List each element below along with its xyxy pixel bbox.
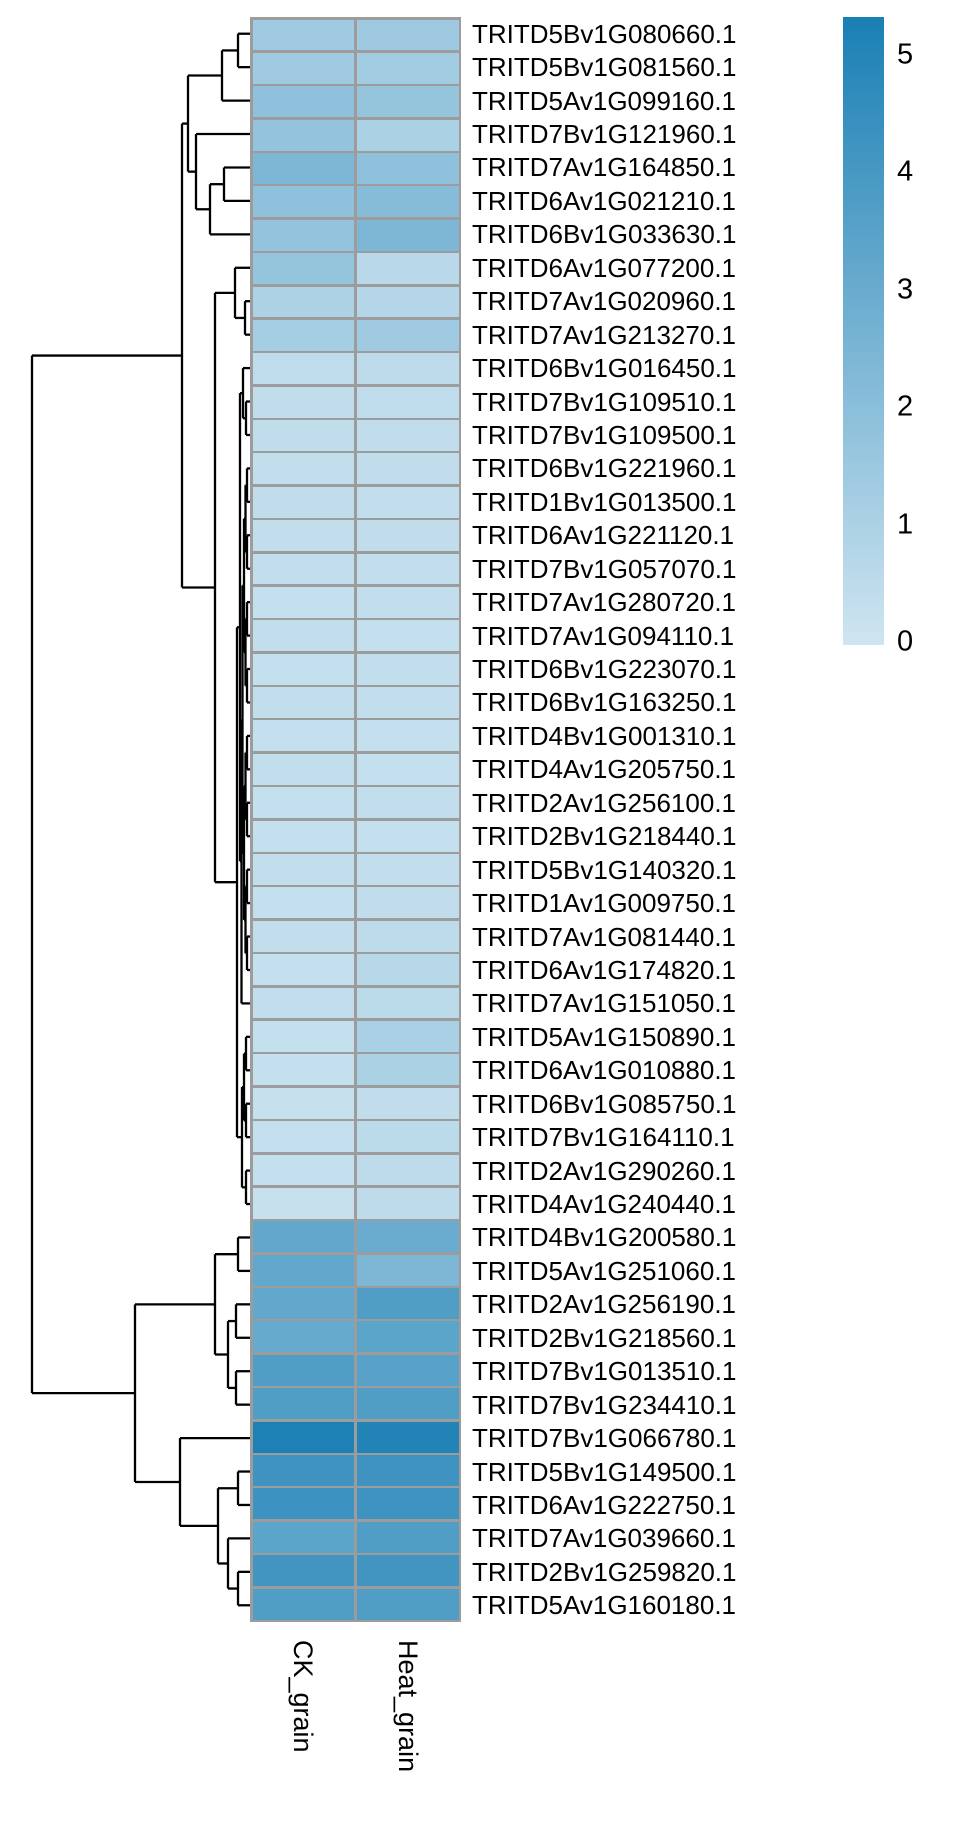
row-label: TRITD6Bv1G033630.1 (472, 221, 736, 247)
heatmap-cell (253, 1422, 355, 1453)
heatmap-cell (357, 620, 459, 651)
heatmap-cell (253, 287, 355, 318)
heatmap-cell (253, 1188, 355, 1219)
heatmap-cell (357, 1488, 459, 1519)
heatmap-cell (253, 1488, 355, 1519)
heatmap-cell (253, 1388, 355, 1419)
heatmap-cell (357, 1288, 459, 1319)
heatmap-cell (357, 487, 459, 518)
heatmap-cell (253, 821, 355, 852)
heatmap-cell (253, 720, 355, 751)
row-label: TRITD6Bv1G016450.1 (472, 355, 736, 381)
clustered-heatmap-figure: TRITD5Bv1G080660.1TRITD5Bv1G081560.1TRIT… (0, 0, 961, 1825)
row-label: TRITD5Bv1G140320.1 (472, 857, 736, 883)
row-label: TRITD6Av1G174820.1 (472, 957, 736, 983)
row-label: TRITD6Bv1G223070.1 (472, 656, 736, 682)
row-label: TRITD7Av1G151050.1 (472, 990, 736, 1016)
row-label: TRITD7Bv1G164110.1 (472, 1124, 735, 1150)
heatmap-cell (357, 687, 459, 718)
heatmap-cell (253, 1455, 355, 1486)
heatmap-cell (357, 387, 459, 418)
row-label: TRITD7Av1G213270.1 (472, 322, 736, 348)
row-label: TRITD4Av1G240440.1 (472, 1191, 736, 1217)
heatmap-cell (357, 1054, 459, 1085)
heatmap-cell (253, 1321, 355, 1352)
heatmap-cell (253, 754, 355, 785)
row-label: TRITD5Av1G150890.1 (472, 1024, 736, 1050)
row-label: TRITD7Av1G020960.1 (472, 288, 736, 314)
heatmap-cell (357, 554, 459, 585)
row-label: TRITD5Bv1G080660.1 (472, 21, 736, 47)
heatmap-cell (253, 320, 355, 351)
heatmap-cell (357, 587, 459, 618)
heatmap-cell (357, 253, 459, 284)
heatmap-cell (357, 20, 459, 51)
heatmap-cell (253, 520, 355, 551)
heatmap-cell (253, 921, 355, 952)
heatmap-cell (253, 687, 355, 718)
heatmap-cell (357, 1121, 459, 1152)
heatmap-cell (253, 86, 355, 117)
heatmap-cell (253, 1288, 355, 1319)
row-label: TRITD6Av1G221120.1 (472, 522, 734, 548)
heatmap-cell (357, 287, 459, 318)
heatmap-cell (253, 1589, 355, 1620)
heatmap-cell (253, 420, 355, 451)
row-label: TRITD7Bv1G066780.1 (472, 1425, 736, 1451)
row-label: TRITD6Bv1G163250.1 (472, 689, 736, 715)
row-label: TRITD7Bv1G013510.1 (472, 1358, 736, 1384)
row-label: TRITD7Av1G039660.1 (472, 1525, 736, 1551)
heatmap-cell (253, 654, 355, 685)
heatmap-cell (253, 53, 355, 84)
heatmap-cell (253, 253, 355, 284)
heatmap-cell (357, 453, 459, 484)
heatmap-cell (253, 620, 355, 651)
row-label: TRITD6Bv1G085750.1 (472, 1091, 736, 1117)
row-label: TRITD4Bv1G200580.1 (472, 1224, 736, 1250)
row-label: TRITD7Bv1G109510.1 (472, 389, 736, 415)
row-label: TRITD7Av1G280720.1 (472, 589, 736, 615)
legend-tick-label: 4 (897, 158, 913, 187)
heatmap-cell (357, 420, 459, 451)
heatmap-cell (357, 854, 459, 885)
row-label: TRITD6Av1G077200.1 (472, 255, 736, 281)
heatmap-cell (253, 1088, 355, 1119)
row-label: TRITD7Bv1G109500.1 (472, 422, 736, 448)
heatmap-cell (357, 1221, 459, 1252)
heatmap-cell (253, 353, 355, 384)
row-label: TRITD7Av1G081440.1 (472, 924, 736, 950)
heatmap-grid (250, 17, 461, 1622)
heatmap-cell (357, 1455, 459, 1486)
heatmap-cell (253, 20, 355, 51)
heatmap-cell (357, 53, 459, 84)
heatmap-cell (253, 153, 355, 184)
legend-tick-label: 5 (897, 41, 913, 70)
heatmap-cell (357, 153, 459, 184)
row-label: TRITD2Bv1G218560.1 (472, 1325, 736, 1351)
column-label: Heat_grain (394, 1640, 421, 1772)
legend-tick-label: 2 (897, 393, 913, 422)
heatmap-cell (253, 453, 355, 484)
heatmap-cell (357, 1422, 459, 1453)
heatmap-cell (357, 754, 459, 785)
row-label: TRITD7Bv1G057070.1 (472, 556, 736, 582)
column-label: CK_grain (289, 1640, 316, 1753)
heatmap-cell (253, 387, 355, 418)
heatmap-cell (253, 954, 355, 985)
heatmap-cell (357, 1155, 459, 1186)
heatmap-cell (253, 988, 355, 1019)
row-label: TRITD7Av1G094110.1 (472, 623, 734, 649)
heatmap-cell (357, 887, 459, 918)
row-label: TRITD5Av1G099160.1 (472, 88, 736, 114)
heatmap-cell (357, 1589, 459, 1620)
row-label: TRITD2Av1G256190.1 (472, 1291, 736, 1317)
heatmap-cell (253, 587, 355, 618)
heatmap-cell (357, 1522, 459, 1553)
row-label: TRITD5Bv1G149500.1 (472, 1459, 736, 1485)
row-label: TRITD2Av1G290260.1 (472, 1158, 736, 1184)
row-label: TRITD4Bv1G001310.1 (472, 723, 736, 749)
row-label: TRITD5Av1G160180.1 (472, 1592, 736, 1618)
heatmap-cell (357, 787, 459, 818)
legend-tick-label: 3 (897, 275, 913, 304)
heatmap-cell (253, 1221, 355, 1252)
heatmap-cell (357, 1355, 459, 1386)
legend-tick-label: 1 (897, 510, 913, 539)
heatmap-cell (357, 320, 459, 351)
row-label: TRITD2Bv1G259820.1 (472, 1559, 736, 1585)
row-label: TRITD5Av1G251060.1 (472, 1258, 736, 1284)
heatmap-cell (253, 487, 355, 518)
heatmap-cell (357, 220, 459, 251)
heatmap-cell (253, 220, 355, 251)
heatmap-cell (357, 654, 459, 685)
heatmap-cell (357, 86, 459, 117)
heatmap-cell (357, 1021, 459, 1052)
heatmap-cell (357, 120, 459, 151)
row-label: TRITD7Bv1G121960.1 (472, 121, 736, 147)
row-label: TRITD6Av1G010880.1 (472, 1057, 736, 1083)
heatmap-cell (253, 1555, 355, 1586)
heatmap-cell (357, 988, 459, 1019)
row-label: TRITD7Av1G164850.1 (472, 154, 736, 180)
heatmap-cell (253, 854, 355, 885)
heatmap-cell (253, 186, 355, 217)
heatmap-cell (253, 1255, 355, 1286)
heatmap-cell (357, 1555, 459, 1586)
heatmap-cell (357, 353, 459, 384)
heatmap-cell (253, 1054, 355, 1085)
heatmap-cell (253, 120, 355, 151)
row-label: TRITD1Av1G009750.1 (472, 890, 736, 916)
row-label: TRITD4Av1G205750.1 (472, 756, 736, 782)
heatmap-cell (357, 1388, 459, 1419)
heatmap-cell (253, 554, 355, 585)
heatmap-cell (357, 1188, 459, 1219)
heatmap-cell (357, 1088, 459, 1119)
legend-tick-label: 0 (897, 628, 913, 657)
row-label: TRITD6Bv1G221960.1 (472, 455, 736, 481)
color-legend-bar (843, 17, 884, 645)
row-label: TRITD7Bv1G234410.1 (472, 1392, 736, 1418)
heatmap-cell (253, 1522, 355, 1553)
heatmap-cell (253, 887, 355, 918)
row-label: TRITD6Av1G222750.1 (472, 1492, 736, 1518)
heatmap-cell (253, 1021, 355, 1052)
heatmap-cell (357, 821, 459, 852)
heatmap-cell (357, 520, 459, 551)
heatmap-cell (253, 1121, 355, 1152)
heatmap-cell (357, 186, 459, 217)
heatmap-cell (357, 1255, 459, 1286)
heatmap-cell (357, 954, 459, 985)
heatmap-cell (253, 1155, 355, 1186)
row-label: TRITD1Bv1G013500.1 (472, 489, 736, 515)
row-label: TRITD2Av1G256100.1 (472, 790, 736, 816)
row-label: TRITD2Bv1G218440.1 (472, 823, 736, 849)
heatmap-cell (253, 1355, 355, 1386)
heatmap-cell (253, 787, 355, 818)
row-label: TRITD6Av1G021210.1 (472, 188, 736, 214)
heatmap-cell (357, 921, 459, 952)
heatmap-cell (357, 720, 459, 751)
row-label: TRITD5Bv1G081560.1 (472, 54, 736, 80)
heatmap-cell (357, 1321, 459, 1352)
